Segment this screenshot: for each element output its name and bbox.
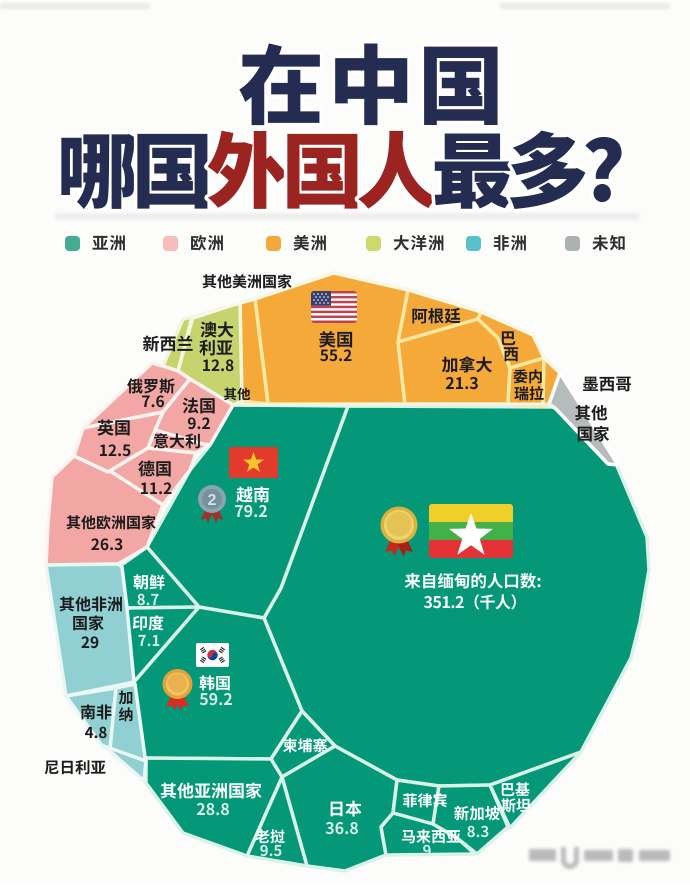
- svg-text:2: 2: [208, 492, 217, 509]
